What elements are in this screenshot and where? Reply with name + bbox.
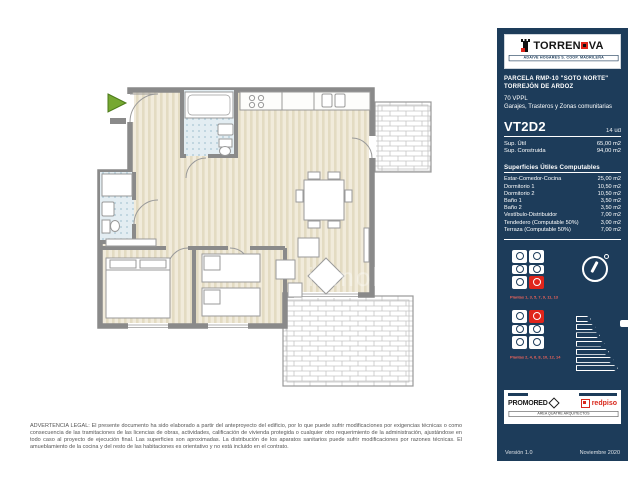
surface-label: Vestíbulo-Distribuidor <box>504 212 557 219</box>
surface-value: 3,00 m2 <box>601 220 621 227</box>
surface-row: Estar-Comedor-Cocina25,00 m2 <box>504 176 621 183</box>
pillow <box>140 260 166 268</box>
project-city: TORREJÓN DE ARDOZ <box>504 84 621 92</box>
chair <box>328 172 340 179</box>
partner-logos-box: PROMORED redpiso AREA QUATRE ARQUITECTOS <box>504 390 621 424</box>
surface-label: Estar-Comedor-Cocina <box>504 176 561 183</box>
project-extras: Garajes, Trasteros y Zonas comunitarias <box>504 104 621 112</box>
surface-value: 10,50 m2 <box>598 191 621 198</box>
surface-summary: Sup. Útil65,00 m2Sup. Construida94,00 m2 <box>504 141 621 156</box>
side-table <box>288 283 302 297</box>
bathroom-sink <box>102 202 114 216</box>
promored-logo: PROMORED <box>508 399 558 407</box>
diamond-icon <box>548 398 559 409</box>
brand-tagline: ADAIVE HOGARES S. COOP. MADRILEÑA <box>508 55 618 61</box>
project-info: PARCELA RMP-10 "SOTO NORTE" TORREJÓN DE … <box>504 76 621 111</box>
surface-label: Baño 1 <box>504 198 522 205</box>
surface-value: 94,00 m2 <box>597 148 621 155</box>
project-vppl: 70 VPPL <box>504 96 621 104</box>
pillow <box>110 260 136 268</box>
dining-table <box>296 172 352 228</box>
armchair <box>298 238 319 257</box>
keyplan-unit <box>529 250 544 263</box>
unit-model: VT2D2 <box>504 119 546 134</box>
keyplan-unit <box>512 310 527 323</box>
energy-bar <box>576 316 591 322</box>
brand-red-square-icon <box>581 42 588 49</box>
surfaces-table: Estar-Comedor-Cocina25,00 m2Dormitorio 1… <box>504 176 621 234</box>
keyplan-zone: Plantas 1, 3, 5, 7, 9, 11, 13 Plantas 2,… <box>504 248 621 386</box>
unit-count: 14 ud <box>606 128 621 134</box>
project-parcel: PARCELA RMP-10 "SOTO NORTE" <box>504 76 621 84</box>
bathtub <box>185 92 233 118</box>
keyplan-odd-floors <box>512 250 545 289</box>
surface-row: Terraza (Computable 50%)7,00 m2 <box>504 227 621 234</box>
surface-value: 10,50 m2 <box>598 184 621 191</box>
keyplan-unit <box>529 265 544 274</box>
toilet <box>111 221 120 232</box>
kitchen-counter <box>240 92 370 110</box>
surface-row: Sup. Útil65,00 m2 <box>504 141 621 148</box>
date-label: Noviembre 2020 <box>580 450 620 456</box>
brand-logo-box: TORRENVA ADAIVE HOGARES S. COOP. MADRILE… <box>504 34 621 69</box>
floor-plan-drawing: inmob <box>82 80 482 410</box>
energy-bar <box>576 324 596 330</box>
keyplan-even-floors <box>512 310 545 349</box>
surface-value: 7,00 m2 <box>601 212 621 219</box>
entrance-arrow <box>108 94 126 112</box>
tv-unit <box>364 228 369 262</box>
surface-label: Terraza (Computable 50%) <box>504 227 571 234</box>
armchair <box>276 260 295 279</box>
redpiso-icon <box>581 399 590 408</box>
surface-label: Dormitorio 2 <box>504 191 534 198</box>
surface-label: Baño 2 <box>504 205 522 212</box>
compass-icon <box>582 256 608 282</box>
surface-row: Dormitorio 110,50 m2 <box>504 184 621 191</box>
keyplan-unit <box>512 336 527 349</box>
info-panel: TORRENVA ADAIVE HOGARES S. COOP. MADRILE… <box>497 28 628 461</box>
tower-logo-icon <box>521 39 530 52</box>
surface-value: 7,00 m2 <box>601 227 621 234</box>
surface-row: Vestíbulo-Distribuidor7,00 m2 <box>504 212 621 219</box>
surface-label: Sup. Útil <box>504 141 526 148</box>
floor-plan: inmob <box>82 80 482 410</box>
energy-bar <box>576 349 609 355</box>
label-bar <box>508 393 528 396</box>
chair <box>308 172 320 179</box>
version-row: Versión 1.0 Noviembre 2020 <box>505 450 620 456</box>
energy-bar <box>576 357 614 363</box>
version-label: Versión 1.0 <box>505 450 533 456</box>
surface-value: 3,50 m2 <box>601 205 621 212</box>
pillow <box>204 256 220 270</box>
bathroom-sink <box>218 124 233 135</box>
divider <box>504 239 621 240</box>
surface-row: Dormitorio 210,50 m2 <box>504 191 621 198</box>
surface-row: Sup. Construida94,00 m2 <box>504 148 621 155</box>
keyplan-unit <box>529 336 544 349</box>
keyplan-unit <box>512 325 527 334</box>
surface-value: 3,50 m2 <box>601 198 621 205</box>
brand-name: TORRENVA <box>533 40 603 52</box>
energy-bar <box>576 332 600 338</box>
keyplan-unit <box>529 325 544 334</box>
architect-credit: AREA QUATRE ARQUITECTOS <box>509 411 619 417</box>
terrace <box>283 296 413 386</box>
pillow <box>204 290 220 304</box>
shower-tray <box>102 174 132 196</box>
unit-model-row: VT2D2 14 ud <box>504 119 621 137</box>
surface-label: Dormitorio 1 <box>504 184 534 191</box>
keyplan-unit-highlighted <box>529 276 544 289</box>
surface-row: Tendedero (Computable 50%)3,00 m2 <box>504 220 621 227</box>
kitchen-sink <box>322 94 332 107</box>
energy-bar <box>576 341 605 347</box>
keyplan-unit <box>512 276 527 289</box>
surface-row: Baño 13,50 m2 <box>504 198 621 205</box>
legal-disclaimer: ADVERTENCIA LEGAL: El presente documento… <box>30 423 462 451</box>
toilet <box>102 220 110 233</box>
chair <box>328 221 340 228</box>
surface-label: Tendedero (Computable 50%) <box>504 220 579 227</box>
energy-rating-tag <box>620 320 631 327</box>
toilet <box>220 147 231 156</box>
tendedero <box>375 102 431 172</box>
surface-label: Sup. Construida <box>504 148 546 155</box>
closet <box>106 239 156 246</box>
keyplan-unit <box>512 250 527 263</box>
keyplan-unit <box>512 265 527 274</box>
energy-rating-icon <box>576 316 622 373</box>
keyplan-even-caption: Plantas 2, 4, 6, 8, 10, 12, 14 <box>510 356 560 360</box>
kitchen-sink <box>335 94 345 107</box>
surface-value: 65,00 m2 <box>597 141 621 148</box>
chair <box>308 221 320 228</box>
surface-value: 25,00 m2 <box>598 176 621 183</box>
chair <box>345 190 352 202</box>
redpiso-logo: redpiso <box>581 399 617 408</box>
toilet <box>219 139 232 147</box>
facade-wall-stub <box>110 118 126 124</box>
watermark: inmob <box>308 262 389 292</box>
label-bar <box>579 393 617 396</box>
keyplan-odd-caption: Plantas 1, 3, 5, 7, 9, 11, 13 <box>510 296 558 300</box>
chair <box>296 190 303 202</box>
keyplan-unit-highlighted <box>529 310 544 323</box>
energy-bar <box>576 365 618 371</box>
surfaces-title: Superficies Útiles Computables <box>504 164 621 174</box>
plan-sheet-page: inmob TORRENVA ADAIVE HOGARES S. COOP. M… <box>0 0 640 480</box>
surface-row: Baño 23,50 m2 <box>504 205 621 212</box>
